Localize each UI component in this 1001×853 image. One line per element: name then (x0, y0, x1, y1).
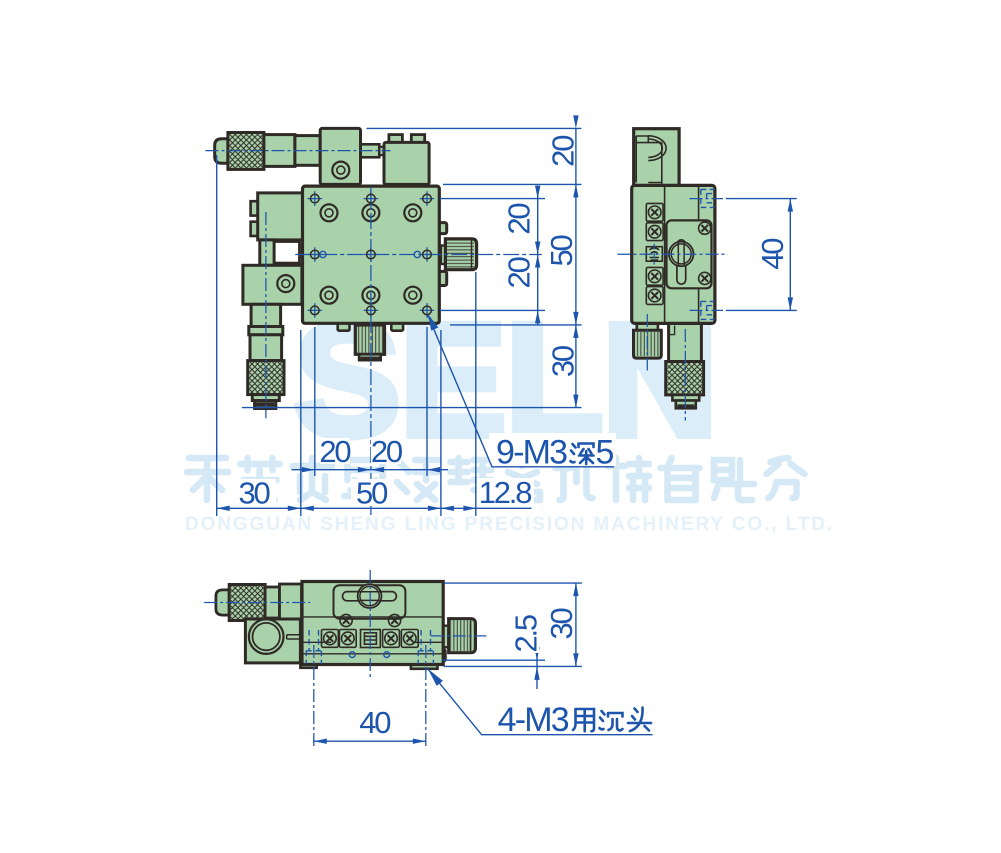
svg-text:20: 20 (502, 256, 537, 288)
svg-text:30: 30 (238, 476, 270, 511)
svg-text:50: 50 (544, 235, 579, 267)
svg-text:9-M3: 9-M3 (496, 434, 567, 472)
svg-text:20: 20 (371, 434, 403, 469)
svg-text:12.8: 12.8 (479, 475, 531, 510)
svg-text:20: 20 (502, 203, 537, 235)
svg-text:4-M3: 4-M3 (498, 701, 569, 739)
svg-text:40: 40 (755, 238, 790, 270)
svg-text:DONGGUAN SHENG LING PRECISION: DONGGUAN SHENG LING PRECISION MACHINERY … (185, 514, 834, 535)
svg-text:20: 20 (319, 434, 351, 469)
svg-text:20: 20 (545, 135, 580, 167)
svg-text:50: 50 (356, 476, 388, 511)
svg-text:2.5: 2.5 (509, 615, 544, 652)
svg-text:30: 30 (545, 345, 580, 377)
svg-text:5: 5 (596, 434, 614, 472)
svg-text:30: 30 (544, 608, 579, 640)
svg-text:40: 40 (359, 705, 391, 740)
